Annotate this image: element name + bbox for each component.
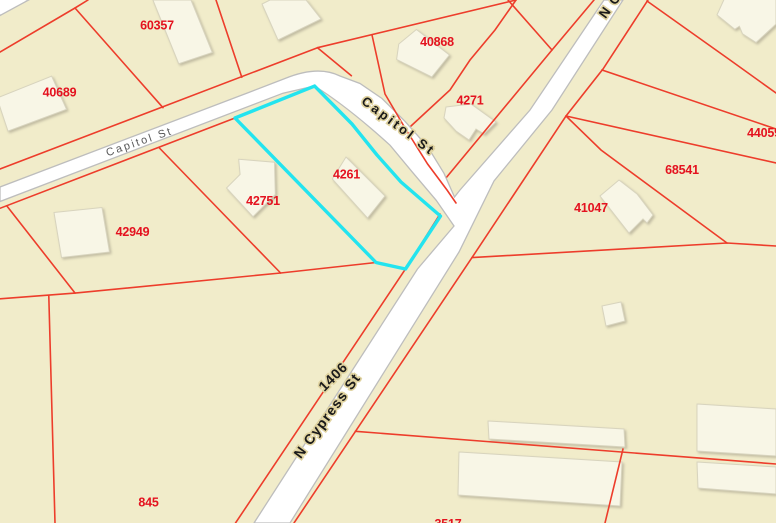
svg-text:845: 845 xyxy=(138,496,159,510)
svg-text:40868: 40868 xyxy=(420,35,454,49)
svg-text:40689: 40689 xyxy=(43,86,77,100)
svg-text:3517: 3517 xyxy=(434,517,461,523)
svg-text:4271: 4271 xyxy=(456,94,483,108)
svg-text:4261: 4261 xyxy=(333,168,360,182)
svg-text:42751: 42751 xyxy=(246,194,280,208)
svg-text:44059: 44059 xyxy=(747,126,776,140)
svg-text:68541: 68541 xyxy=(665,163,699,177)
svg-text:42949: 42949 xyxy=(116,225,150,239)
svg-text:41047: 41047 xyxy=(574,201,608,215)
svg-text:60357: 60357 xyxy=(140,19,174,33)
